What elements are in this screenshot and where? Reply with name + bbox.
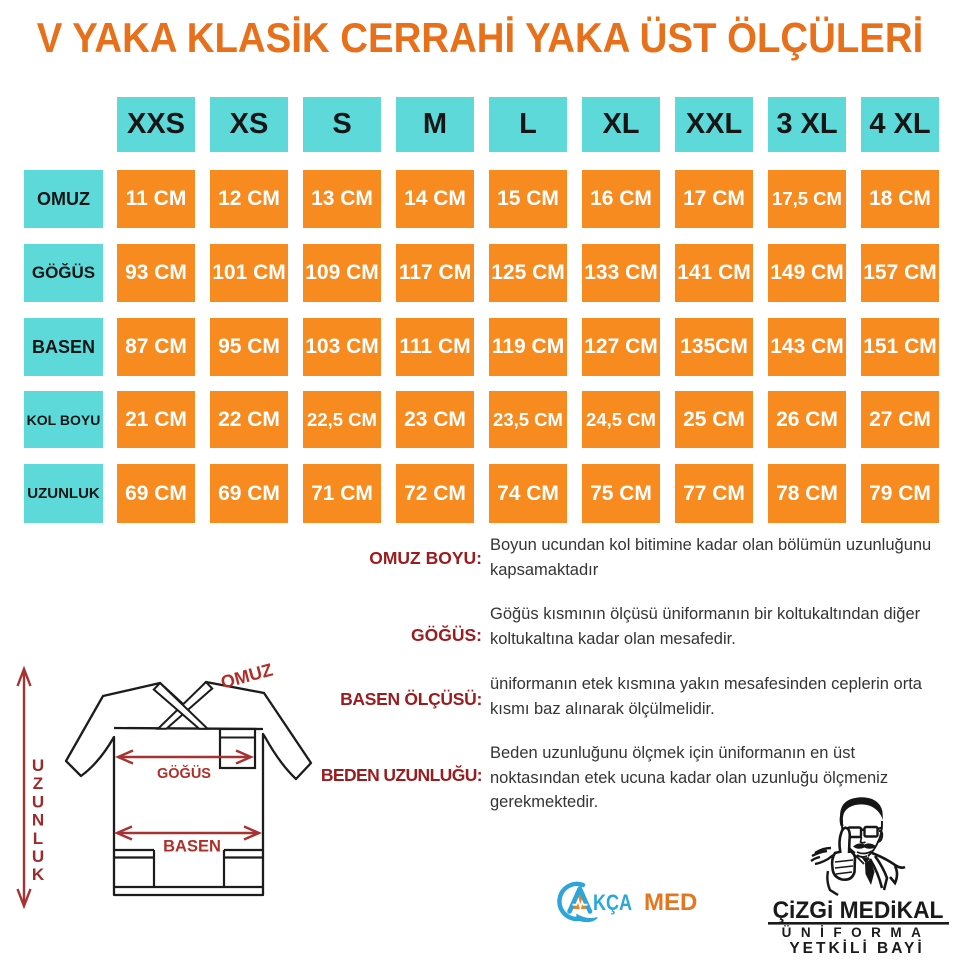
- svg-text:GÖĞÜS: GÖĞÜS: [157, 764, 211, 782]
- svg-text:U: U: [32, 847, 44, 866]
- svg-text:N: N: [32, 811, 44, 830]
- svg-text:OMUZ: OMUZ: [219, 660, 275, 693]
- svg-text:L: L: [33, 829, 43, 848]
- svg-text:YETKİLİ BAYİ: YETKİLİ BAYİ: [789, 940, 924, 957]
- svg-text:ÜNİFORMA: ÜNİFORMA: [782, 925, 931, 940]
- svg-text:ÇiZGi MEDiKAL: ÇiZGi MEDiKAL: [773, 896, 944, 923]
- svg-text:MED: MED: [644, 889, 697, 916]
- svg-text:Z: Z: [33, 774, 43, 793]
- svg-text:KÇA: KÇA: [593, 891, 632, 915]
- svg-text:K: K: [32, 865, 45, 884]
- svg-text:BASEN: BASEN: [163, 838, 221, 856]
- svg-text:U: U: [32, 792, 44, 811]
- svg-text:U: U: [32, 756, 44, 775]
